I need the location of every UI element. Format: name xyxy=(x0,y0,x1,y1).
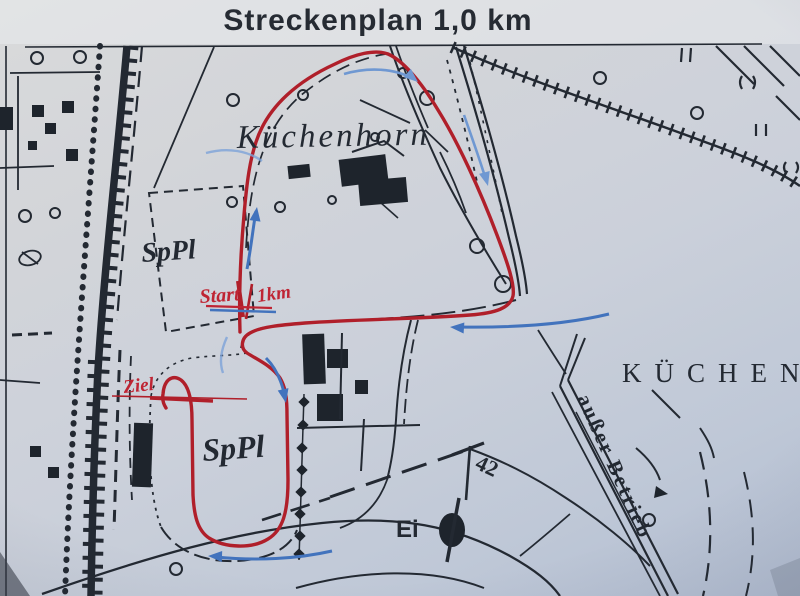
arrowhead-up xyxy=(250,206,263,221)
left-structures xyxy=(0,72,100,383)
rail-marker-triangle xyxy=(654,486,668,498)
arrowhead-right-down xyxy=(479,171,493,187)
arrowhead-loop-down xyxy=(278,388,292,404)
arrowhead-west xyxy=(450,322,465,334)
start-label: Start xyxy=(199,283,242,308)
railway-status-label: außer Betrieb xyxy=(572,390,658,543)
map-drawing: Streckenplan 1,0 km Küchenhorn KÜCHEN Sp… xyxy=(0,0,800,596)
direction-arrow-west xyxy=(458,314,609,327)
field-lower-label: SpPl xyxy=(201,428,266,468)
field-upper-label: SpPl xyxy=(140,234,197,269)
corner-shadow-right xyxy=(770,558,800,596)
map-title: Streckenplan 1,0 km xyxy=(223,4,532,37)
start-underline-blue xyxy=(210,310,276,312)
start-slash xyxy=(246,284,252,319)
elevation-marker-label: 42 xyxy=(472,450,503,482)
railway-embankment-left xyxy=(65,46,142,596)
forest-area-label: Küchenhorn xyxy=(236,117,431,156)
railway-crossties-top xyxy=(452,47,800,186)
hatch-ne-corner xyxy=(681,46,800,173)
blue-stroke-bend xyxy=(221,337,227,373)
start-distance-label: 1km xyxy=(256,281,292,306)
course-map-photo: Streckenplan 1,0 km Küchenhorn KÜCHEN Sp… xyxy=(0,0,800,596)
arrowhead-bottom-west xyxy=(208,551,222,562)
pond-label: Ei xyxy=(396,516,419,543)
finish-label: Ziel xyxy=(121,374,155,398)
pond-symbol xyxy=(439,498,465,562)
district-label: KÜCHEN xyxy=(622,358,800,388)
corner-shadow-left xyxy=(0,552,30,596)
